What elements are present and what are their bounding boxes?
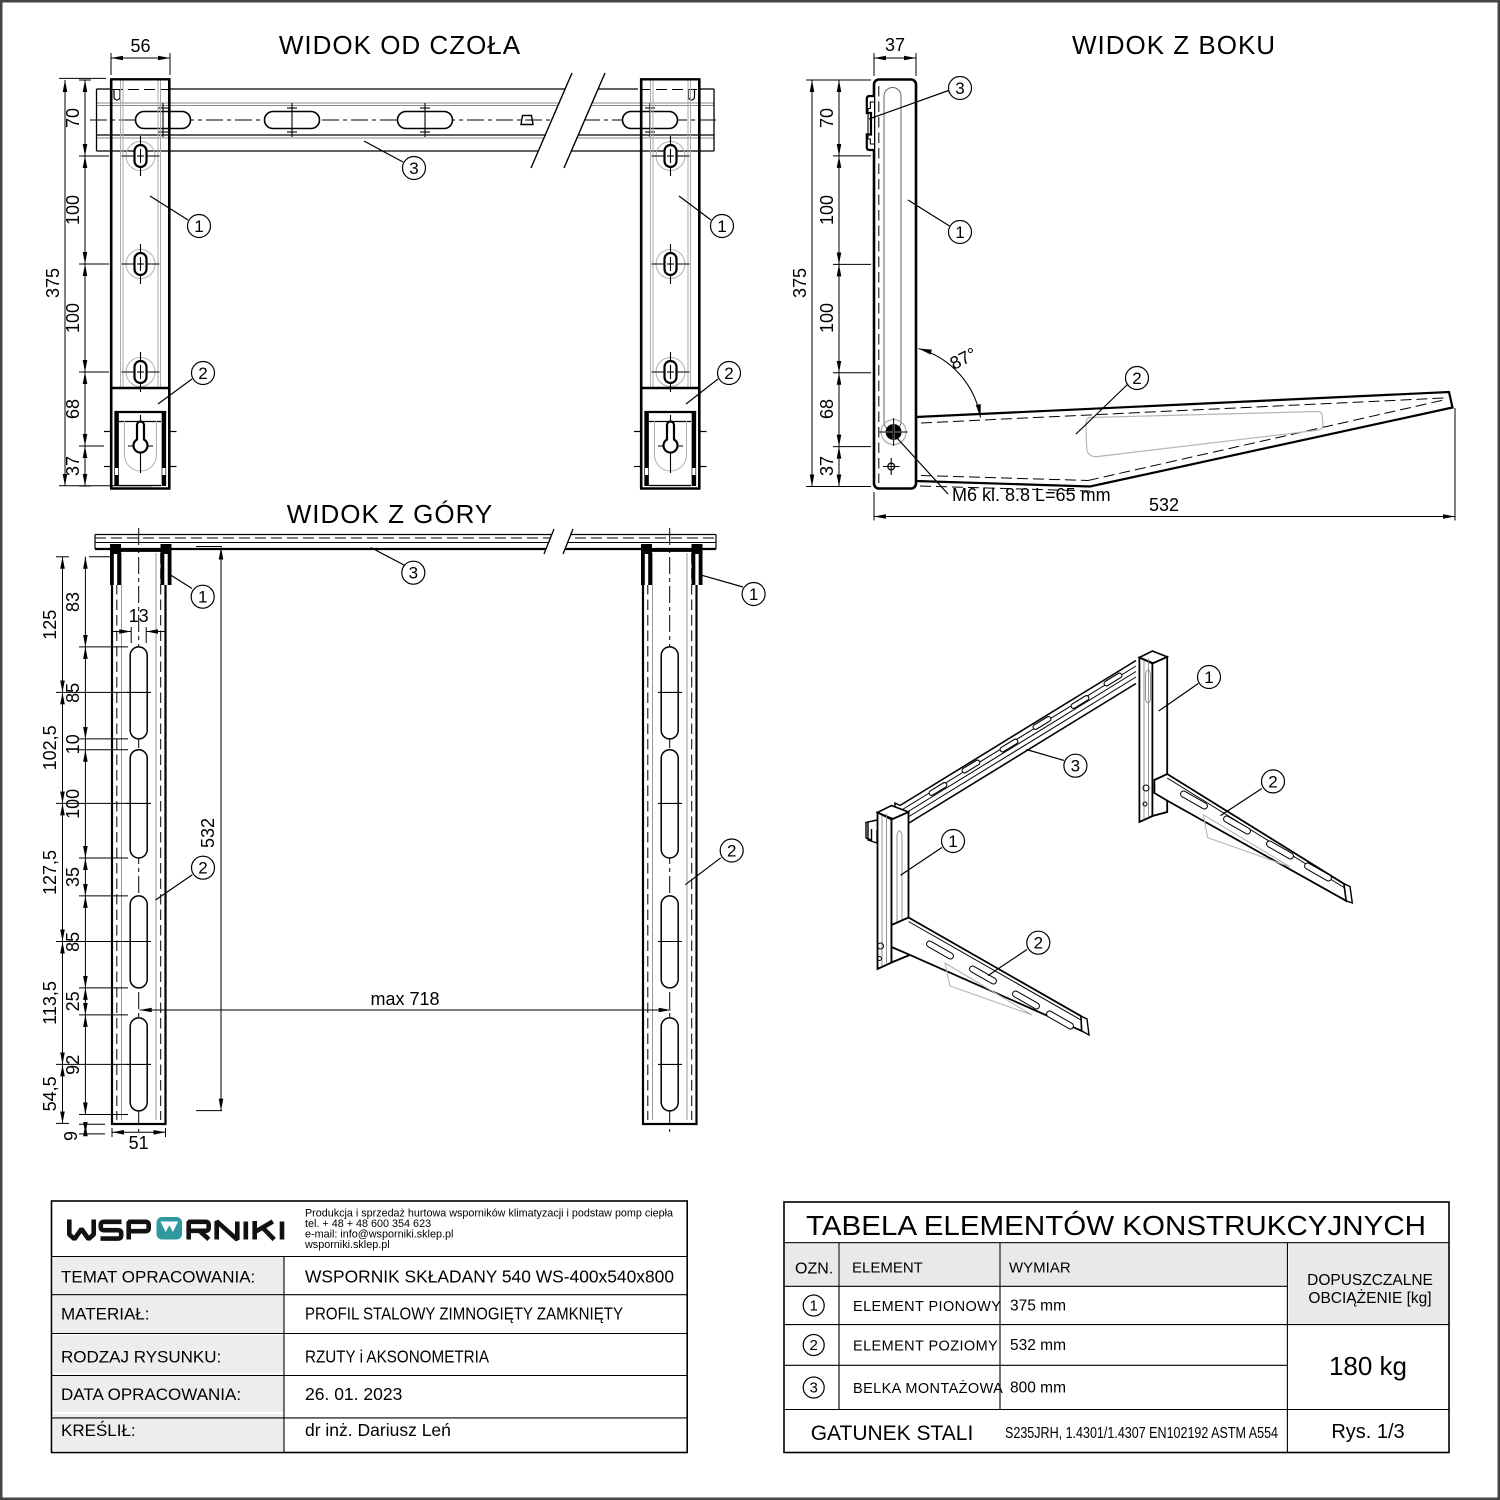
svg-text:68: 68 — [817, 399, 837, 419]
svg-text:1: 1 — [198, 588, 207, 607]
svg-text:113,5: 113,5 — [40, 981, 60, 1025]
svg-text:100: 100 — [817, 303, 837, 333]
svg-text:ELEMENT: ELEMENT — [852, 1260, 923, 1277]
svg-text:127,5: 127,5 — [40, 850, 60, 895]
svg-text:M6 kl. 8.8 L=65 mm: M6 kl. 8.8 L=65 mm — [952, 485, 1111, 505]
svg-text:2: 2 — [810, 1337, 818, 1354]
svg-text:37: 37 — [885, 35, 905, 55]
svg-text:125: 125 — [40, 610, 60, 640]
svg-text:WSPORNIK SKŁADANY 540 WS-400x5: WSPORNIK SKŁADANY 540 WS-400x540x800 — [305, 1266, 674, 1286]
svg-text:WIDOK Z BOKU: WIDOK Z BOKU — [1072, 30, 1276, 60]
svg-text:3: 3 — [1071, 757, 1080, 776]
svg-text:100: 100 — [63, 195, 83, 225]
svg-text:2: 2 — [198, 364, 207, 383]
svg-text:3: 3 — [409, 564, 418, 583]
svg-text:DATA OPRACOWANIA:: DATA OPRACOWANIA: — [61, 1385, 241, 1404]
svg-text:100: 100 — [63, 789, 83, 819]
svg-text:375: 375 — [43, 268, 63, 298]
svg-text:OBCIĄŻENIE [kg]: OBCIĄŻENIE [kg] — [1308, 1289, 1431, 1307]
svg-text:1: 1 — [749, 585, 758, 604]
svg-text:2: 2 — [1034, 934, 1043, 953]
svg-text:51: 51 — [129, 1133, 149, 1153]
svg-text:1: 1 — [955, 223, 964, 242]
svg-text:max 718: max 718 — [370, 989, 439, 1009]
svg-text:532: 532 — [198, 818, 218, 848]
svg-text:WYMIAR: WYMIAR — [1009, 1260, 1071, 1277]
svg-text:KREŚLIŁ:: KREŚLIŁ: — [61, 1421, 136, 1440]
svg-text:70: 70 — [817, 108, 837, 128]
svg-text:1: 1 — [810, 1298, 818, 1315]
svg-text:OZN.: OZN. — [795, 1261, 833, 1278]
svg-text:37: 37 — [63, 456, 83, 476]
svg-text:3: 3 — [810, 1380, 818, 1397]
svg-text:wsporniki.sklep.pl: wsporniki.sklep.pl — [304, 1239, 390, 1251]
svg-text:PROFIL STALOWY ZIMNOGIĘTY ZAMK: PROFIL STALOWY ZIMNOGIĘTY ZAMKNIĘTY — [305, 1304, 623, 1324]
svg-text:2: 2 — [198, 859, 207, 878]
svg-text:100: 100 — [817, 195, 837, 225]
svg-text:BELKA MONTAŻOWA: BELKA MONTAŻOWA — [853, 1379, 1003, 1397]
svg-text:ELEMENT POZIOMY: ELEMENT POZIOMY — [853, 1339, 998, 1355]
svg-text:2: 2 — [727, 842, 736, 861]
svg-text:375: 375 — [790, 268, 810, 298]
svg-text:1: 1 — [717, 217, 726, 236]
svg-text:10: 10 — [63, 734, 83, 754]
svg-text:1: 1 — [948, 832, 957, 851]
svg-text:102,5: 102,5 — [40, 725, 60, 770]
svg-text:GATUNEK STALI: GATUNEK STALI — [811, 1422, 974, 1445]
svg-text:68: 68 — [63, 399, 83, 419]
svg-text:35: 35 — [63, 867, 83, 887]
svg-text:180 kg: 180 kg — [1329, 1351, 1407, 1381]
svg-text:S235JRH, 1.4301/1.4307 EN1021: S235JRH, 1.4301/1.4307 EN102192 ASTM A55… — [1005, 1425, 1278, 1442]
svg-text:2: 2 — [1132, 369, 1141, 388]
svg-text:100: 100 — [63, 303, 83, 333]
svg-text:RODZAJ RYSUNKU:: RODZAJ RYSUNKU: — [61, 1348, 221, 1367]
svg-text:54,5: 54,5 — [40, 1076, 60, 1111]
svg-text:375 mm: 375 mm — [1010, 1298, 1066, 1315]
svg-text:83: 83 — [63, 592, 83, 612]
svg-text:WIDOK Z GÓRY: WIDOK Z GÓRY — [287, 499, 494, 529]
svg-text:70: 70 — [63, 108, 83, 128]
svg-text:Rys. 1/3: Rys. 1/3 — [1331, 1421, 1404, 1443]
svg-text:56: 56 — [130, 36, 150, 56]
svg-text:dr inż. Dariusz Leń: dr inż. Dariusz Leń — [305, 1420, 451, 1440]
svg-text:13: 13 — [129, 606, 149, 626]
svg-text:9: 9 — [61, 1131, 81, 1141]
svg-text:DOPUSZCZALNE: DOPUSZCZALNE — [1307, 1272, 1433, 1289]
svg-text:WIDOK OD CZOŁA: WIDOK OD CZOŁA — [279, 30, 521, 60]
svg-text:RZUTY i AKSONOMETRIA: RZUTY i AKSONOMETRIA — [305, 1347, 489, 1367]
svg-text:3: 3 — [409, 159, 418, 178]
svg-text:37: 37 — [817, 456, 837, 476]
svg-text:532 mm: 532 mm — [1010, 1337, 1066, 1354]
svg-text:TABELA ELEMENTÓW KONSTRUKCYJNY: TABELA ELEMENTÓW KONSTRUKCYJNYCH — [806, 1210, 1426, 1241]
svg-text:MATERIAŁ:: MATERIAŁ: — [61, 1305, 149, 1324]
svg-text:85: 85 — [63, 683, 83, 703]
svg-text:800 mm: 800 mm — [1010, 1380, 1066, 1397]
svg-text:26. 01. 2023: 26. 01. 2023 — [305, 1384, 402, 1404]
svg-text:92: 92 — [63, 1055, 83, 1075]
svg-text:25: 25 — [63, 991, 83, 1011]
svg-text:3: 3 — [955, 79, 964, 98]
svg-text:85: 85 — [63, 932, 83, 952]
svg-text:TEMAT OPRACOWANIA:: TEMAT OPRACOWANIA: — [61, 1267, 255, 1286]
svg-text:1: 1 — [1204, 668, 1213, 687]
svg-text:2: 2 — [1268, 772, 1277, 791]
svg-text:ELEMENT PIONOWY: ELEMENT PIONOWY — [853, 1299, 1001, 1315]
svg-text:532: 532 — [1149, 495, 1179, 515]
svg-text:1: 1 — [194, 217, 203, 236]
svg-text:2: 2 — [724, 364, 733, 383]
